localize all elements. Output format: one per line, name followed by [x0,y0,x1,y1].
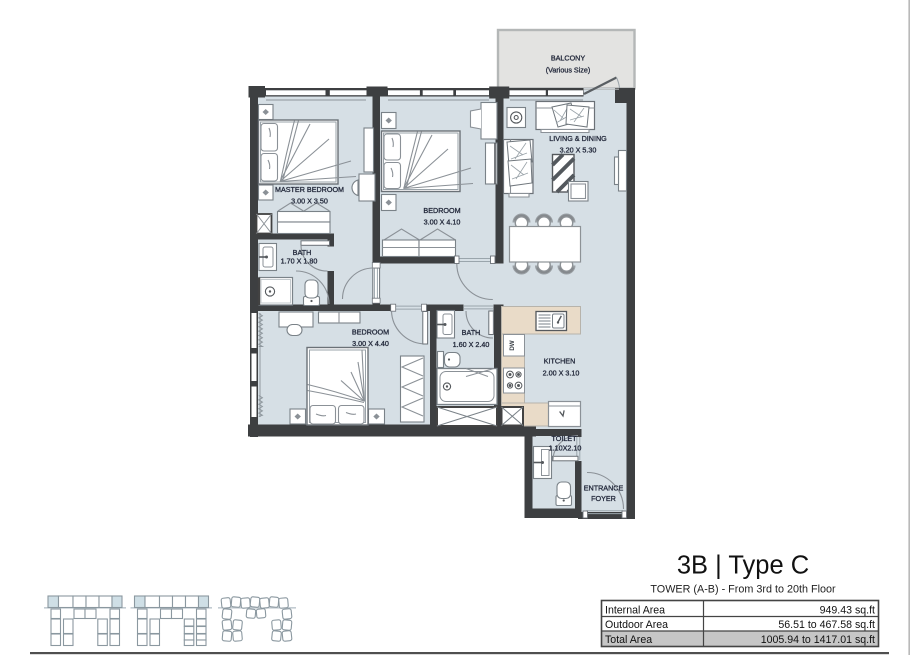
svg-text:3.00 X 4.40: 3.00 X 4.40 [352,339,389,348]
svg-text:BEDROOM: BEDROOM [352,328,389,337]
svg-text:KITCHEN: KITCHEN [544,357,576,366]
svg-text:3.00 X 4.10: 3.00 X 4.10 [424,218,461,227]
svg-text:TOILET: TOILET [551,434,577,443]
svg-text:949.43 sq.ft: 949.43 sq.ft [820,605,875,617]
svg-text:1.70 X 1.80: 1.70 X 1.80 [281,257,318,266]
svg-text:Outdoor Area: Outdoor Area [605,619,668,631]
svg-text:LIVING & DINING: LIVING & DINING [549,134,607,143]
svg-text:1005.94 to 1417.01 sq.ft: 1005.94 to 1417.01 sq.ft [761,634,875,646]
svg-text:1.60 X 2.40: 1.60 X 2.40 [453,340,490,349]
svg-text:BALCONY: BALCONY [551,54,586,63]
svg-text:FOYER: FOYER [591,494,616,503]
svg-text:ENTRANCE: ENTRANCE [584,484,624,493]
svg-text:BATH: BATH [462,328,481,337]
svg-text:3.00 X 3.50: 3.00 X 3.50 [291,197,328,206]
svg-text:(Various Size): (Various Size) [546,66,591,75]
svg-text:3B | Type C: 3B | Type C [677,552,809,580]
svg-text:56.51 to 467.58 sq.ft: 56.51 to 467.58 sq.ft [778,619,875,631]
svg-text:MASTER BEDROOM: MASTER BEDROOM [275,185,344,194]
svg-text:TOWER (A-B) - From 3rd to 20th: TOWER (A-B) - From 3rd to 20th Floor [650,584,836,596]
svg-text:3.20 X 5.30: 3.20 X 5.30 [560,146,597,155]
svg-text:1.10X2.10: 1.10X2.10 [549,444,582,453]
svg-text:2.00 X 3.10: 2.00 X 3.10 [543,369,580,378]
svg-text:BEDROOM: BEDROOM [423,206,460,215]
svg-text:DW: DW [509,340,516,350]
svg-text:Internal Area: Internal Area [605,605,665,617]
svg-text:Total Area: Total Area [605,634,652,646]
